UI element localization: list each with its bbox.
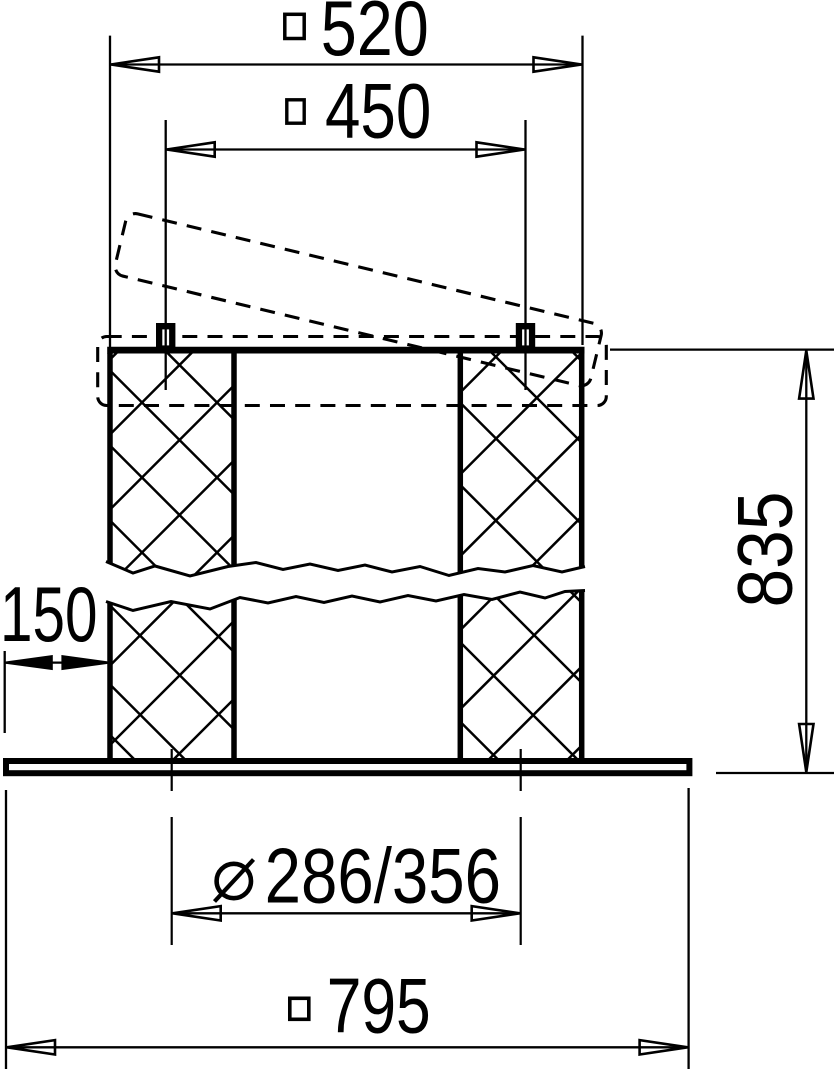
svg-text:795: 795 <box>327 962 431 1050</box>
svg-text:835: 835 <box>721 492 809 608</box>
svg-text:150: 150 <box>0 570 98 658</box>
svg-text:286/356: 286/356 <box>265 832 501 920</box>
svg-text:450: 450 <box>325 67 431 155</box>
svg-text:520: 520 <box>321 0 429 72</box>
